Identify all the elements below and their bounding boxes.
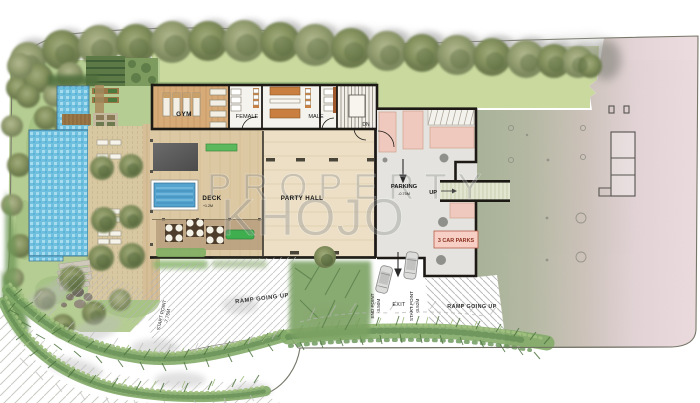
svg-text:DECK: DECK: [202, 195, 221, 202]
svg-text:EXIT: EXIT: [392, 302, 406, 308]
svg-text:MALE: MALE: [308, 114, 324, 120]
svg-text:DN: DN: [362, 122, 370, 128]
svg-text:-3.50M: -3.50M: [376, 299, 381, 313]
svg-text:PARKING: PARKING: [391, 184, 418, 190]
svg-text:RAMP GOING UP: RAMP GOING UP: [447, 304, 496, 310]
svg-text:GYM: GYM: [176, 111, 192, 118]
svg-text:START POINT: START POINT: [409, 291, 414, 321]
svg-text:-0.75M: -0.75M: [398, 192, 410, 196]
svg-text:END POINT: END POINT: [370, 293, 375, 318]
svg-text:-3.52M: -3.52M: [415, 299, 420, 313]
svg-text:+1.2M: +1.2M: [203, 204, 213, 208]
svg-text:UP: UP: [429, 190, 437, 196]
svg-text:FEMALE: FEMALE: [236, 114, 259, 120]
svg-text:PARTY HALL: PARTY HALL: [281, 195, 324, 202]
svg-text:3 CAR PARKS: 3 CAR PARKS: [438, 238, 475, 244]
